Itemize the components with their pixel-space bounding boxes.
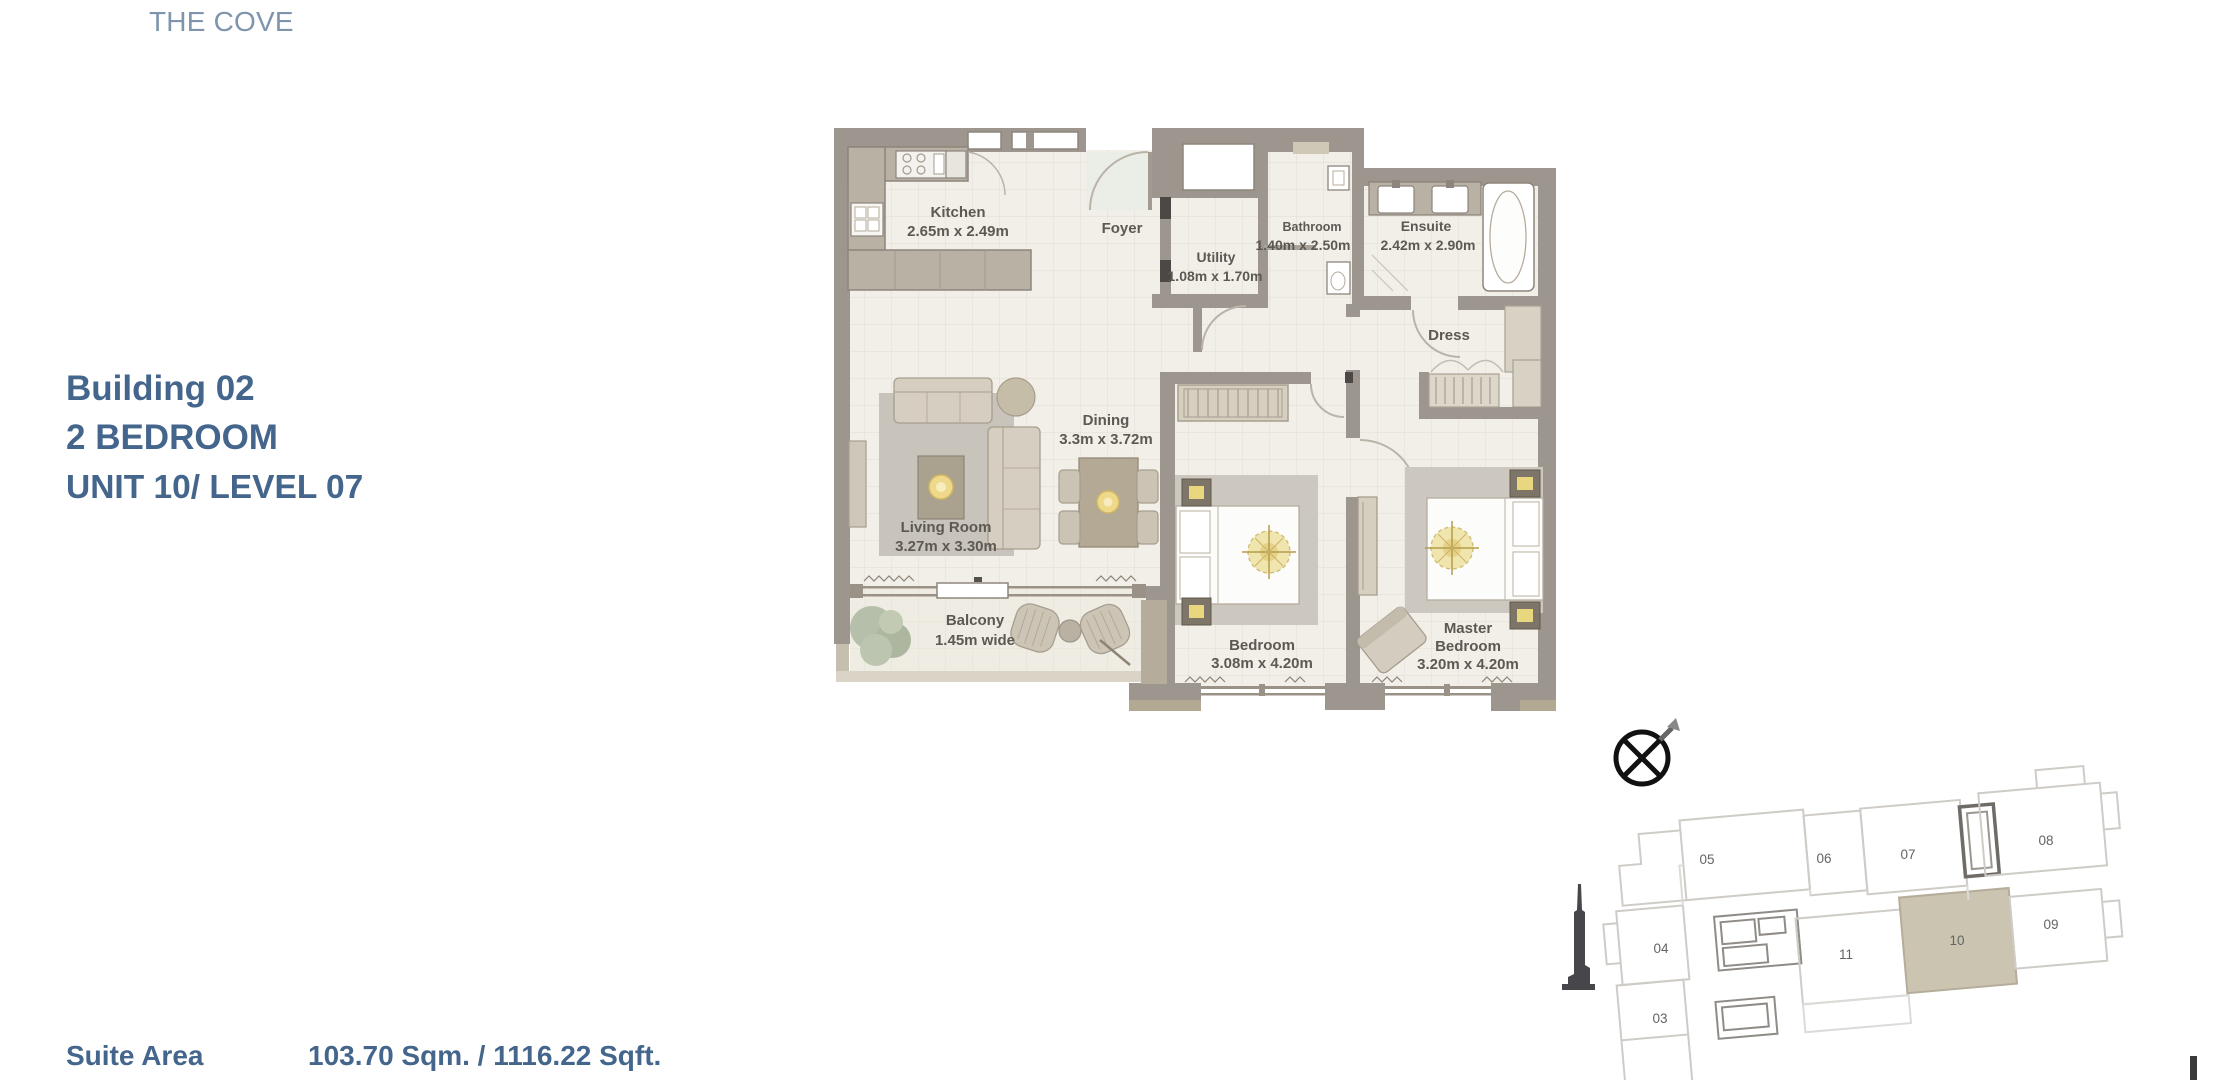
svg-text:1.08m x 1.70m: 1.08m x 1.70m bbox=[1168, 268, 1263, 284]
svg-text:09: 09 bbox=[2043, 917, 2058, 932]
svg-text:03: 03 bbox=[1652, 1011, 1667, 1026]
svg-text:Bedroom: Bedroom bbox=[1435, 638, 1501, 655]
svg-text:2.42m x 2.90m: 2.42m x 2.90m bbox=[1381, 237, 1476, 253]
svg-text:Master: Master bbox=[1444, 620, 1493, 637]
svg-text:Suite Area: Suite Area bbox=[66, 1040, 204, 1071]
svg-text:1.40m x 2.50m: 1.40m x 2.50m bbox=[1256, 237, 1351, 253]
svg-text:1.45m wide: 1.45m wide bbox=[935, 632, 1015, 649]
svg-text:05: 05 bbox=[1699, 852, 1714, 867]
svg-text:Bathroom: Bathroom bbox=[1282, 220, 1341, 234]
svg-text:Foyer: Foyer bbox=[1102, 220, 1143, 237]
svg-text:3.08m x 4.20m: 3.08m x 4.20m bbox=[1211, 655, 1313, 672]
svg-text:Building 02: Building 02 bbox=[66, 369, 255, 408]
svg-text:Kitchen: Kitchen bbox=[930, 204, 985, 221]
svg-text:04: 04 bbox=[1653, 941, 1669, 956]
svg-text:10: 10 bbox=[1949, 933, 1964, 948]
svg-text:UNIT 10/ LEVEL 07: UNIT 10/ LEVEL 07 bbox=[66, 469, 363, 506]
svg-text:103.70 Sqm. / 1116.22 Sqft.: 103.70 Sqm. / 1116.22 Sqft. bbox=[308, 1040, 661, 1071]
svg-text:Utility: Utility bbox=[1197, 249, 1236, 265]
svg-text:11: 11 bbox=[1839, 947, 1853, 962]
svg-text:3.20m x 4.20m: 3.20m x 4.20m bbox=[1417, 656, 1519, 673]
svg-text:2 BEDROOM: 2 BEDROOM bbox=[66, 418, 278, 457]
svg-text:08: 08 bbox=[2038, 833, 2053, 848]
svg-text:Living Room: Living Room bbox=[901, 519, 992, 536]
svg-text:3.27m x 3.30m: 3.27m x 3.30m bbox=[895, 538, 997, 555]
svg-text:06: 06 bbox=[1816, 851, 1831, 866]
svg-text:Bedroom: Bedroom bbox=[1229, 637, 1295, 654]
svg-text:Ensuite: Ensuite bbox=[1401, 218, 1452, 234]
svg-text:3.3m x 3.72m: 3.3m x 3.72m bbox=[1059, 431, 1152, 448]
svg-text:Dress: Dress bbox=[1428, 327, 1470, 344]
svg-text:2.65m x 2.49m: 2.65m x 2.49m bbox=[907, 223, 1009, 240]
svg-text:Dining: Dining bbox=[1083, 412, 1130, 429]
svg-text:THE COVE: THE COVE bbox=[149, 6, 294, 37]
svg-text:07: 07 bbox=[1900, 847, 1915, 862]
svg-text:Balcony: Balcony bbox=[946, 612, 1005, 629]
